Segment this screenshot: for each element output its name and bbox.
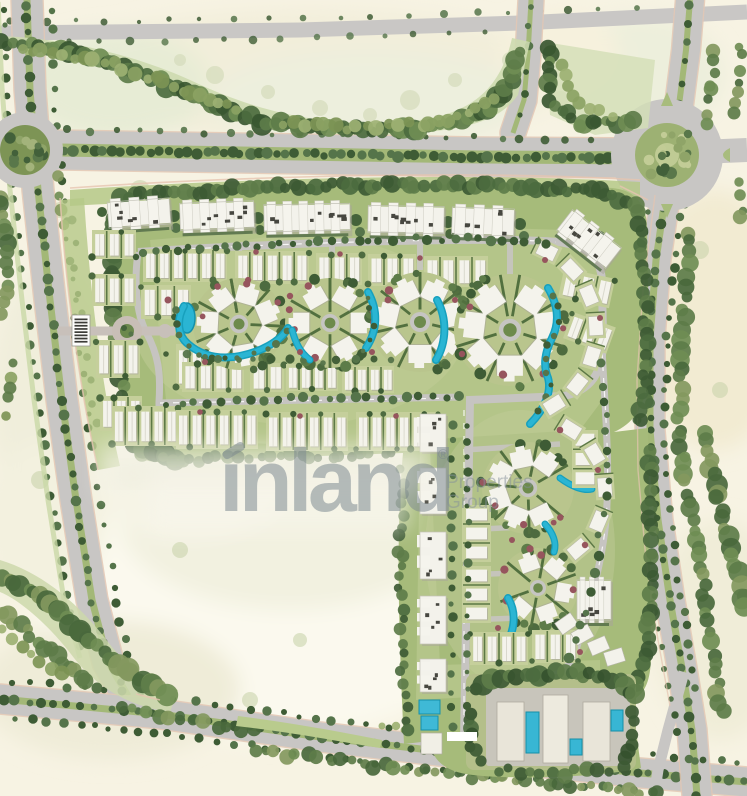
- svg-text:Properties: Properties: [446, 472, 533, 493]
- svg-text:ınland: ınland: [219, 431, 451, 530]
- svg-text:®: ®: [438, 446, 449, 462]
- svg-text:Group: Group: [446, 492, 499, 513]
